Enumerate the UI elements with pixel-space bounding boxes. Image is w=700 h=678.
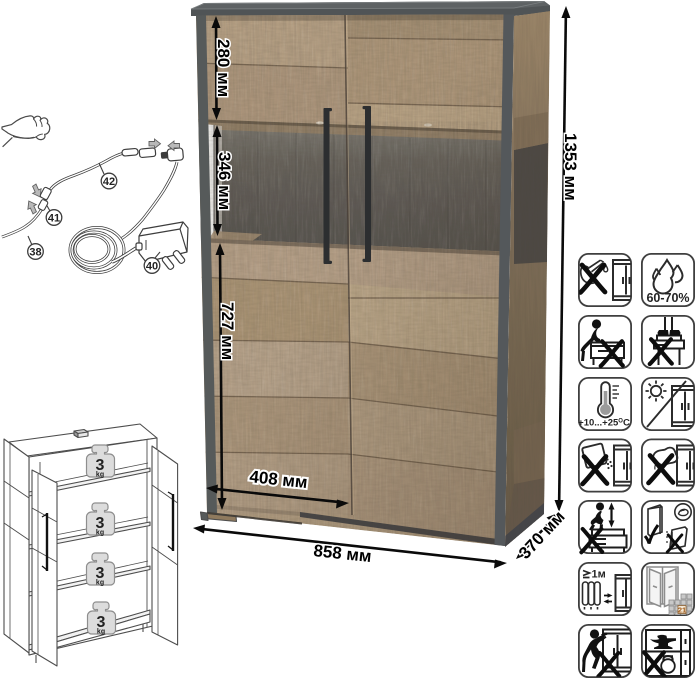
svg-text:346 мм: 346 мм [215,152,234,210]
svg-text:408 мм: 408 мм [249,467,309,492]
svg-text:41: 41 [48,213,60,225]
svg-text:21: 21 [678,606,686,615]
svg-text:kg: kg [96,580,104,587]
svg-text:kg: kg [97,629,105,636]
svg-text:1353 мм: 1353 мм [561,133,580,201]
svg-text:+10...+25OC: +10...+25OC [578,418,630,429]
svg-text:1м: 1м [592,569,606,581]
svg-text:kg: kg [96,530,104,537]
svg-text:42: 42 [103,176,115,188]
svg-text:280 мм: 280 мм [214,39,233,97]
svg-text:60-70%: 60-70% [646,291,689,305]
svg-text:370 мм: 370 мм [515,507,569,563]
svg-text:727 мм: 727 мм [218,302,237,360]
svg-text:38: 38 [29,247,41,259]
svg-text:kg: kg [96,472,104,479]
svg-text:40: 40 [146,261,158,273]
svg-text:858 мм: 858 мм [313,541,373,566]
